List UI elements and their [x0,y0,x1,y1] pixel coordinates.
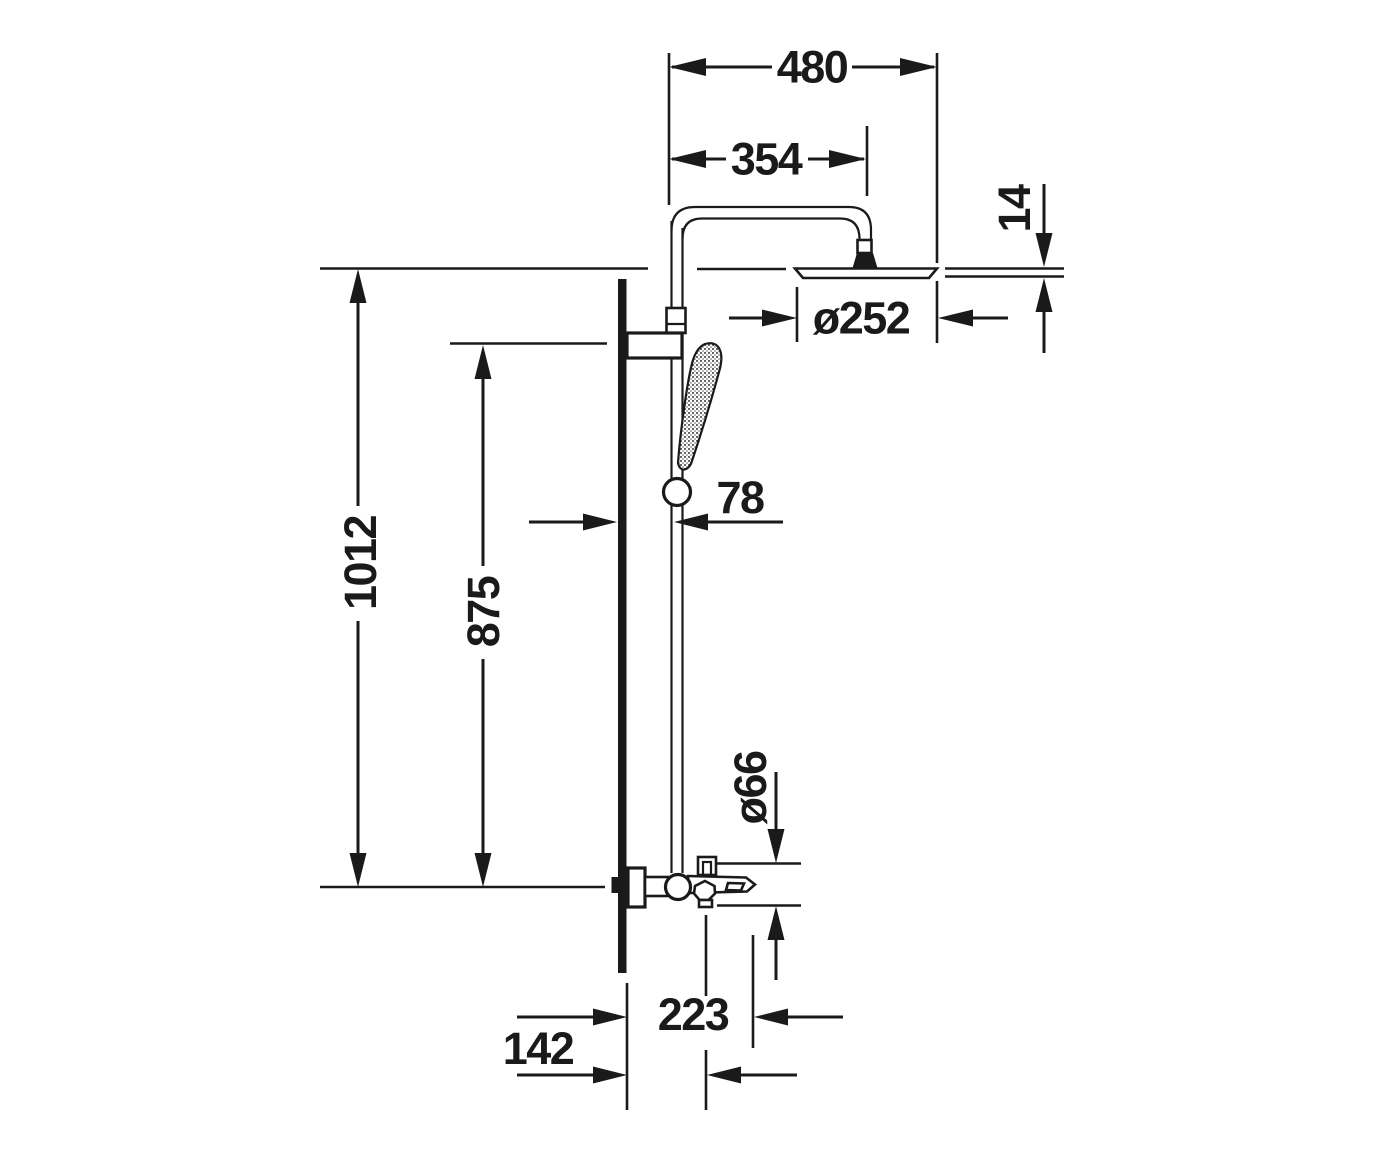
dim-label-354: 354 [731,134,803,185]
dim-label-252: ø252 [813,293,910,344]
dimension-66: ø66 [725,751,785,980]
diverter-square [698,857,716,875]
dim-label-223: 223 [658,989,729,1040]
dim-label-875: 875 [458,576,509,647]
arrowhead-up-icon [475,345,492,379]
arrowhead-right-icon [583,514,617,531]
dimension-875: 875 [458,345,509,887]
arrowhead-up-icon [1036,278,1053,312]
arrowhead-down-icon [1036,233,1053,267]
wall-top-reference-line [320,269,786,270]
dimension-252: ø252 [729,293,1008,344]
shower-dimension-drawing: 480 354 14 ø252 1012 875 7 [0,0,1400,1157]
head-thickness-reference-lines [945,269,1064,277]
overhead-shower-plate [795,269,937,279]
arrowhead-down-icon [350,853,367,887]
arrowhead-left-icon [669,150,706,168]
temperature-knob [694,881,715,900]
dim-label-142: 142 [503,1023,574,1074]
arrowhead-left-icon [669,58,706,76]
arrowhead-right-icon [900,58,937,76]
arrowhead-left-icon [674,514,708,531]
dim-label-1012: 1012 [335,515,386,610]
head-connector-collar [853,253,878,268]
dimension-480: 480 [669,42,937,93]
wall-bracket [627,333,682,358]
slider-ring [664,479,691,506]
knob-base [699,900,712,907]
shower-arm-inner [683,219,860,250]
wall-plate-screw [612,877,619,893]
arrowhead-down-icon [475,853,492,887]
arrowhead-right-icon [829,150,866,168]
arrowhead-up-icon [350,269,367,303]
mixer-valve-body [666,875,691,900]
dim-label-480: 480 [777,42,848,93]
arrowhead-left-icon [754,1009,788,1026]
pipe-sleeve [667,308,686,333]
technical-drawing-canvas: 480 354 14 ø252 1012 875 7 [0,0,1400,1157]
shower-arm [672,207,872,249]
arrowhead-left-icon [938,310,973,327]
head-connector [858,240,872,253]
spout-aerator [726,883,744,891]
dim-label-14: 14 [989,184,1040,233]
dimension-1012: 1012 [335,269,386,887]
arrowhead-right-icon [762,310,797,327]
arrowhead-down-icon [768,829,785,863]
arrowhead-left-icon [707,1067,741,1084]
wall-plate [618,279,627,973]
arrowhead-up-icon [768,906,785,940]
arrowhead-right-icon [593,1067,627,1084]
mixer-escutcheon [628,868,645,907]
arrowhead-right-icon [593,1009,627,1026]
extension-lines [320,53,1064,1110]
dim-label-66: ø66 [725,751,776,825]
dim-label-78: 78 [716,472,764,523]
dimension-78: 78 [529,472,783,531]
hand-shower [678,343,721,469]
dimension-354: 354 [669,134,866,185]
